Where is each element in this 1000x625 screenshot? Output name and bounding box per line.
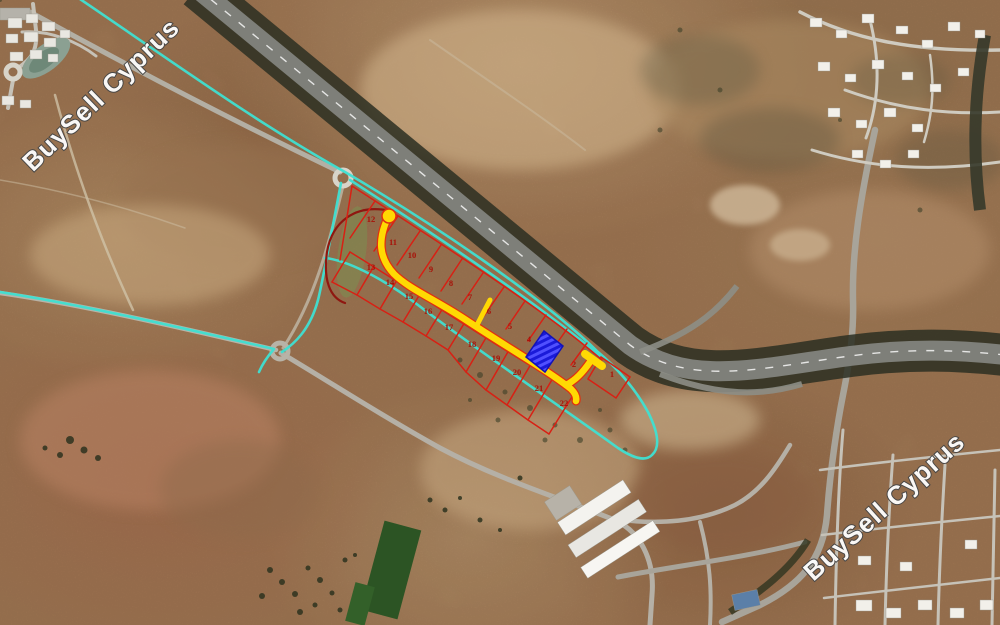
plot-number-19: 19 — [492, 353, 501, 363]
plot-number-16: 16 — [424, 306, 433, 316]
plot-number-8: 8 — [449, 278, 453, 288]
plot-number-15: 15 — [405, 291, 414, 301]
plot-number-10: 10 — [408, 250, 417, 260]
plot-number-5: 5 — [508, 321, 512, 331]
plot-number-20: 20 — [513, 367, 522, 377]
plot-number-22: 22 — [560, 398, 569, 408]
plot-number-6: 6 — [487, 306, 491, 316]
plot-number-14: 14 — [386, 277, 395, 287]
plot-number-12: 12 — [367, 214, 376, 224]
plot-number-17: 17 — [445, 322, 454, 332]
plot-number-21: 21 — [535, 383, 544, 393]
plot-number-2: 2 — [572, 359, 576, 369]
map-canvas: 1211109876542113141516171819202122 BuySe… — [0, 0, 1000, 625]
plot-number-1: 1 — [610, 369, 614, 379]
plot-number-18: 18 — [468, 339, 477, 349]
satellite-map: 1211109876542113141516171819202122 BuySe… — [0, 0, 1000, 625]
plot-number-9: 9 — [429, 264, 433, 274]
plot-number-13: 13 — [367, 262, 376, 272]
plot-number-11: 11 — [389, 237, 397, 247]
